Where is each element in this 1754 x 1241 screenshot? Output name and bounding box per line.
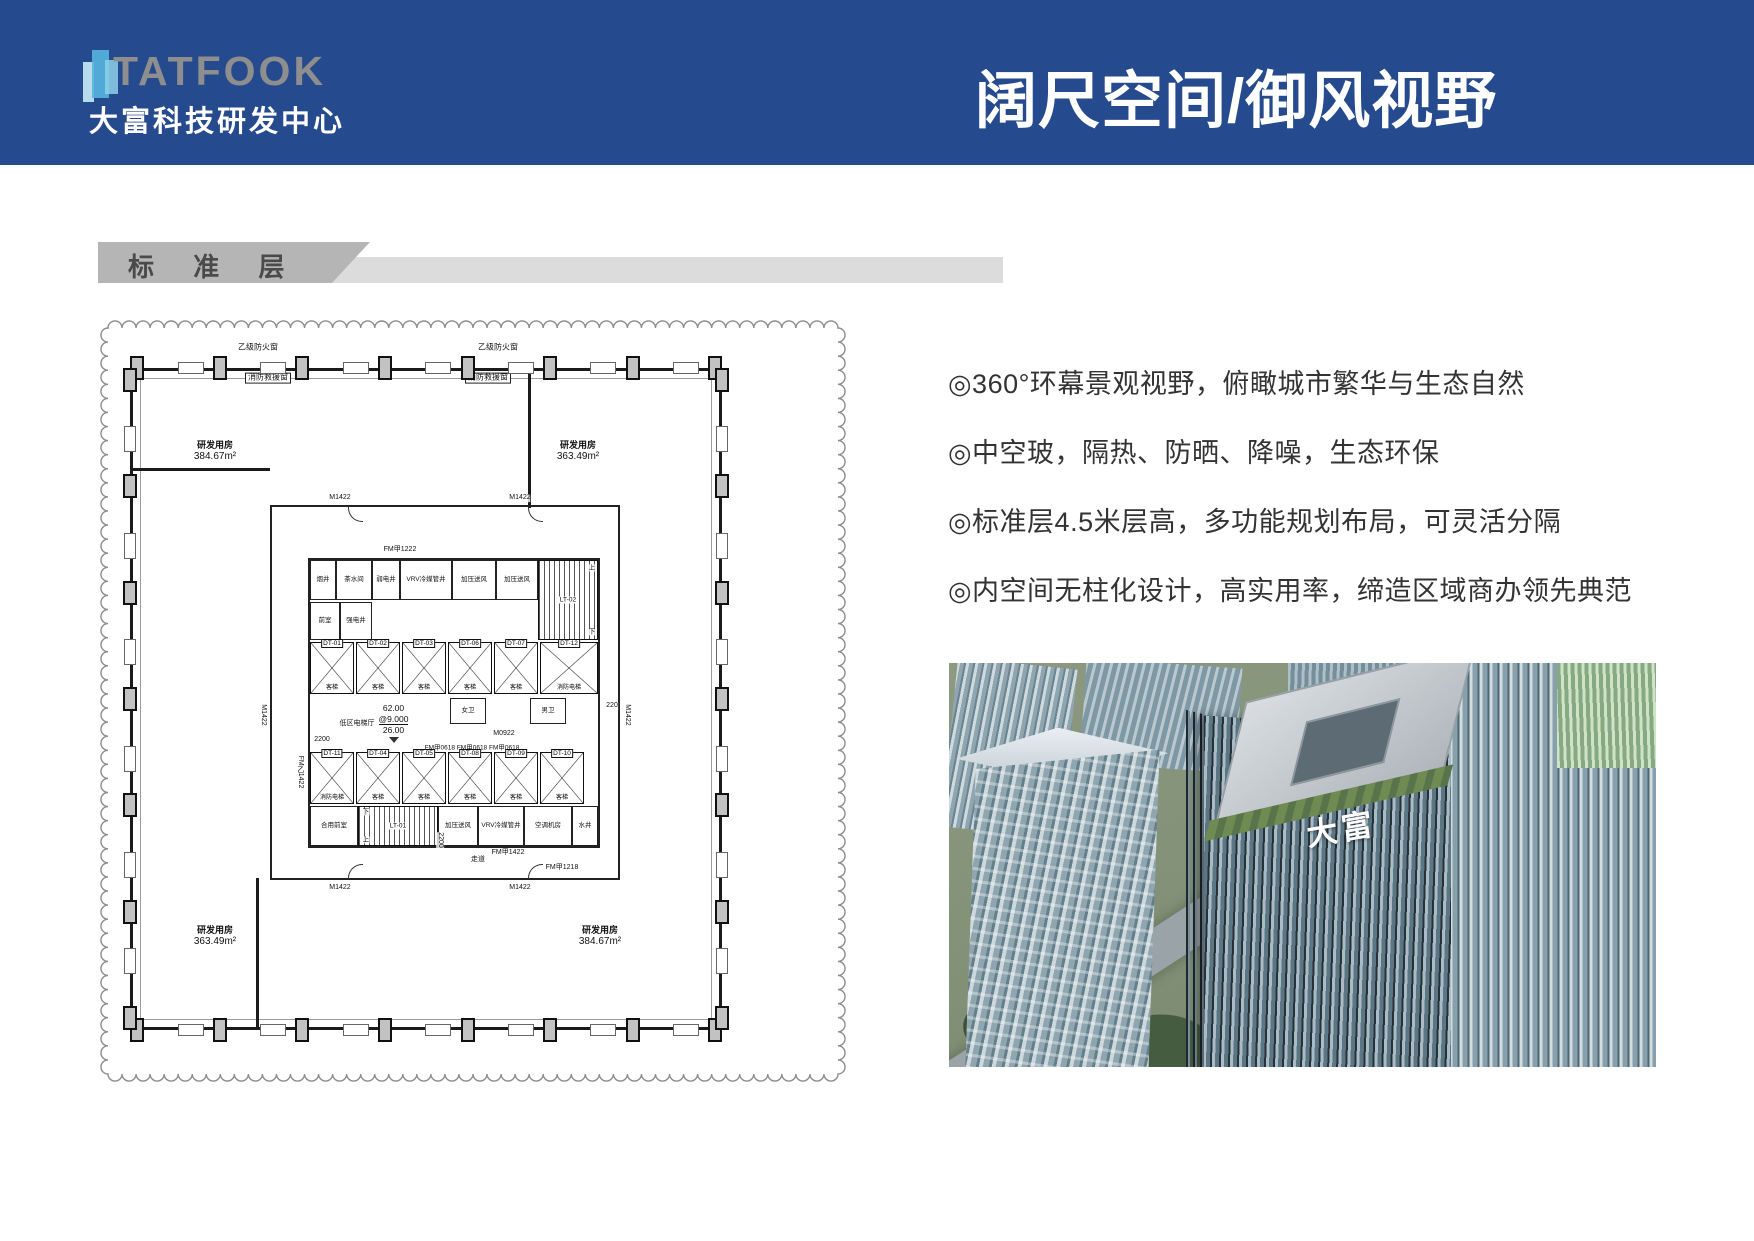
door-label-m1422: M1422	[329, 884, 350, 892]
partition-bottom	[256, 878, 259, 1030]
elevation-marker-icon	[389, 737, 399, 743]
room-label-bl: 研发用房363.49m²	[194, 923, 236, 947]
stair-up-label: 上	[363, 836, 370, 843]
corridor-label: 走道	[471, 856, 485, 864]
window-tick	[124, 533, 136, 559]
window-label: 乙级防火窗	[478, 344, 518, 353]
room-label-tr: 研发用房363.49m²	[557, 438, 599, 462]
lift-dt09: DT-09客梯	[494, 752, 538, 804]
render-green-tower	[1557, 663, 1656, 768]
window-tick	[343, 1024, 369, 1036]
shaft-cell: 烟井	[310, 560, 336, 600]
lift-dt06: DT-06客梯	[448, 642, 492, 694]
lift-dt01: DT-01客梯	[310, 642, 354, 694]
column	[715, 793, 729, 817]
door-label-m0922: M0922	[493, 730, 514, 738]
column	[295, 356, 309, 380]
window-tick	[508, 1024, 534, 1036]
page: TATFOOK 大富科技研发中心 阔尺空间/御风视野 标 准 层 乙级防火窗 乙…	[0, 0, 1754, 1241]
lobby-front-cell: 前室	[310, 602, 340, 640]
stair-lt01: LT-01	[358, 806, 438, 846]
window-label: 乙级防火窗	[238, 344, 278, 353]
column	[461, 356, 475, 380]
column	[543, 356, 557, 380]
window-tick	[590, 1024, 616, 1036]
stair-up-label: 上	[589, 564, 596, 571]
shared-front-room-cell: 合用前室	[310, 806, 358, 846]
bullet-4: ◎内空间无柱化设计，高实用率，缔造区域商办领先典范	[948, 569, 1632, 608]
window-tick	[124, 746, 136, 772]
window-tick	[508, 362, 534, 374]
lift-dt07: DT-07客梯	[494, 642, 538, 694]
pantry-cell: 茶水间	[336, 560, 372, 600]
bullet-3: ◎标准层4.5米层高，多功能规划布局，可灵活分隔	[948, 500, 1632, 539]
bullet-1: ◎360°环幕景观视野，俯瞰城市繁华与生态自然	[948, 362, 1632, 401]
column	[123, 1006, 137, 1030]
column	[123, 581, 137, 605]
room-label-tl: 研发用房384.67m²	[194, 438, 236, 462]
ahu-room-cell: 空调机房	[524, 806, 572, 846]
dim-2200: 2200	[314, 736, 330, 744]
logo: TATFOOK 大富科技研发中心	[85, 48, 345, 140]
elv-shaft-cell: 弱电井	[372, 560, 400, 600]
column	[123, 368, 137, 392]
column	[213, 1018, 227, 1042]
column	[715, 368, 729, 392]
dim-220: 220	[606, 702, 618, 710]
column	[626, 1018, 640, 1042]
lift-dt02: DT-02客梯	[356, 642, 400, 694]
window-tick	[716, 746, 728, 772]
window-tick	[124, 639, 136, 665]
section-label: 标 准 层	[128, 247, 300, 284]
window-tick	[425, 1024, 451, 1036]
pressur-cell: 加压送风	[452, 560, 496, 600]
lift-dt05: DT-05客梯	[402, 752, 446, 804]
render-roof-atrium	[1290, 698, 1401, 787]
column	[123, 900, 137, 924]
door-label-fm1218: FM甲1218	[546, 864, 579, 872]
door-label-fmb1422: FM乙1422	[296, 756, 304, 789]
logo-subtitle: 大富科技研发中心	[89, 98, 345, 140]
column	[378, 356, 392, 380]
window-tick	[590, 362, 616, 374]
page-title: 阔尺空间/御风视野	[975, 50, 1497, 140]
door-label-m1422: M1422	[509, 884, 530, 892]
render-left-tower	[965, 750, 1160, 1067]
rescue-window-label: 消防救援窗	[245, 373, 291, 384]
door-label-fm1222: FM甲1222	[384, 546, 417, 554]
partition-left	[130, 468, 270, 471]
window-tick	[260, 1024, 286, 1036]
column	[715, 581, 729, 605]
window-tick	[343, 362, 369, 374]
column	[295, 1018, 309, 1042]
bullet-2: ◎中空玻，隔热、防晒、降噪，生态环保	[948, 431, 1632, 470]
window-tick	[716, 426, 728, 452]
water-shaft-cell: 水井	[572, 806, 598, 846]
header-bar: TATFOOK 大富科技研发中心 阔尺空间/御风视野	[0, 0, 1754, 165]
window-tick	[124, 948, 136, 974]
lift-dt04: DT-04客梯	[356, 752, 400, 804]
lift-dt10: DT-10客梯	[540, 752, 584, 804]
vrv-cell: VRV冷媒管井	[400, 560, 452, 600]
window-tick	[716, 948, 728, 974]
window-tick	[425, 362, 451, 374]
door-label-m1422-rot: M1422	[259, 704, 267, 725]
door-label-m1422-rot: M1422	[623, 704, 631, 725]
column	[123, 474, 137, 498]
window-tick	[260, 362, 286, 374]
door-label-m1422: M1422	[509, 494, 530, 502]
column	[715, 900, 729, 924]
column	[715, 687, 729, 711]
window-tick	[178, 362, 204, 374]
vrv-cell: VRV冷媒管井	[478, 806, 524, 846]
column	[123, 793, 137, 817]
door-label-fm1422: FM甲1422	[492, 849, 525, 857]
column	[123, 687, 137, 711]
column	[715, 474, 729, 498]
toilet-m-cell: 男卫	[530, 698, 566, 724]
lift-dt03: DT-03客梯	[402, 642, 446, 694]
partition-top	[528, 368, 531, 508]
window-tick	[178, 1024, 204, 1036]
building-render-image: 大富	[949, 663, 1656, 1067]
floorplan: 乙级防火窗 乙级防火窗 消防救援窗 消防救援窗 研发用房384.67m² 研发用…	[100, 320, 846, 1082]
window-tick	[716, 852, 728, 878]
dim-2200-rot: 2200	[436, 832, 444, 848]
pressur-cell: 加压送风	[438, 806, 478, 846]
window-tick	[716, 533, 728, 559]
lift-dt08: DT-08客梯	[448, 752, 492, 804]
window-tick	[716, 639, 728, 665]
strong-elec-cell: 强电井	[340, 602, 372, 640]
column	[626, 356, 640, 380]
logo-text: TATFOOK	[113, 48, 345, 94]
column	[543, 1018, 557, 1042]
column	[213, 356, 227, 380]
column	[378, 1018, 392, 1042]
pressur-cell: 加压送风	[496, 560, 538, 600]
lift-dt12: DT-12消防电梯	[540, 642, 598, 694]
lift-dt11: DT-11消防电梯	[310, 752, 354, 804]
window-tick	[124, 426, 136, 452]
feature-bullets: ◎360°环幕景观视野，俯瞰城市繁华与生态自然 ◎中空玻，隔热、防晒、降噪，生态…	[948, 362, 1632, 608]
column	[461, 1018, 475, 1042]
stair-down-label: 下	[363, 808, 370, 815]
window-tick	[673, 1024, 699, 1036]
window-tick	[673, 362, 699, 374]
column	[715, 1006, 729, 1030]
door-label-m1422: M1422	[329, 494, 350, 502]
toilet-w-cell: 女卫	[450, 698, 486, 724]
stair-down-label: 下	[589, 628, 596, 635]
room-label-br: 研发用房384.67m²	[579, 923, 621, 947]
window-tick	[124, 852, 136, 878]
